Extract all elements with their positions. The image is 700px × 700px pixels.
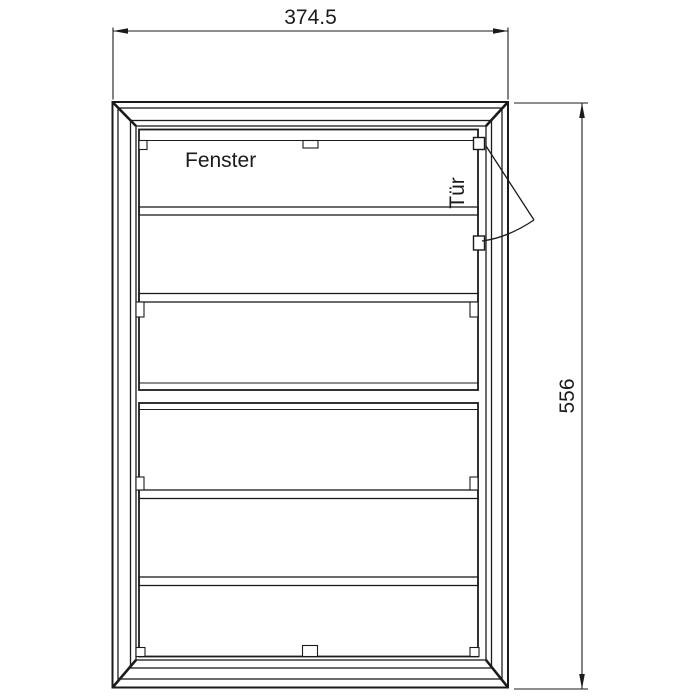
fixed-panel-outline — [139, 403, 478, 657]
frame-miter-top-right — [486, 102, 508, 126]
height-dimension: 556 — [514, 103, 588, 689]
door-hinge-top — [474, 138, 485, 150]
frame-miter-top-left — [113, 102, 137, 126]
glazing-clip-bottom-center — [303, 646, 318, 657]
height-arrow-bottom — [579, 674, 585, 689]
glazing-clip-mid-left — [136, 302, 144, 317]
frame-miter-bottom-right — [486, 660, 508, 688]
width-arrow-right — [493, 28, 508, 34]
height-dimension-value: 556 — [556, 378, 579, 413]
frame-miter-bottom-left — [113, 660, 137, 688]
panel-rail-1 — [139, 490, 478, 499]
frame-profile-line-2 — [118, 108, 502, 679]
panel-rail-2 — [139, 577, 478, 586]
glazing-clip-lower-right — [470, 477, 478, 490]
glazing-clip-top-center — [303, 141, 318, 149]
height-arrow-top — [579, 103, 585, 118]
door-rail-2 — [139, 294, 478, 303]
glazing-clip-bottom-left — [136, 648, 145, 657]
drawing-canvas: 374.5 556 Fenster Tür — [0, 0, 700, 700]
width-arrow-left — [113, 28, 128, 34]
frame-inner-edge — [136, 126, 486, 660]
glazing-clip-bottom-right — [470, 648, 479, 657]
fixed-panel — [136, 403, 479, 657]
glazing-clip-mid-right — [470, 302, 478, 317]
glazing-clip-top-left — [139, 141, 147, 150]
door-hinge-bottom — [474, 236, 485, 250]
swing-line — [486, 146, 534, 220]
window-label: Fenster — [185, 149, 256, 172]
width-dimension-value: 374.5 — [284, 6, 337, 29]
window-door-technical-drawing: 374.5 556 Fenster Tür — [0, 0, 700, 700]
width-dimension: 374.5 — [113, 6, 508, 100]
door-rail-1 — [139, 207, 478, 215]
glazing-clip-lower-left — [136, 477, 144, 490]
door-label: Tür — [446, 177, 469, 209]
